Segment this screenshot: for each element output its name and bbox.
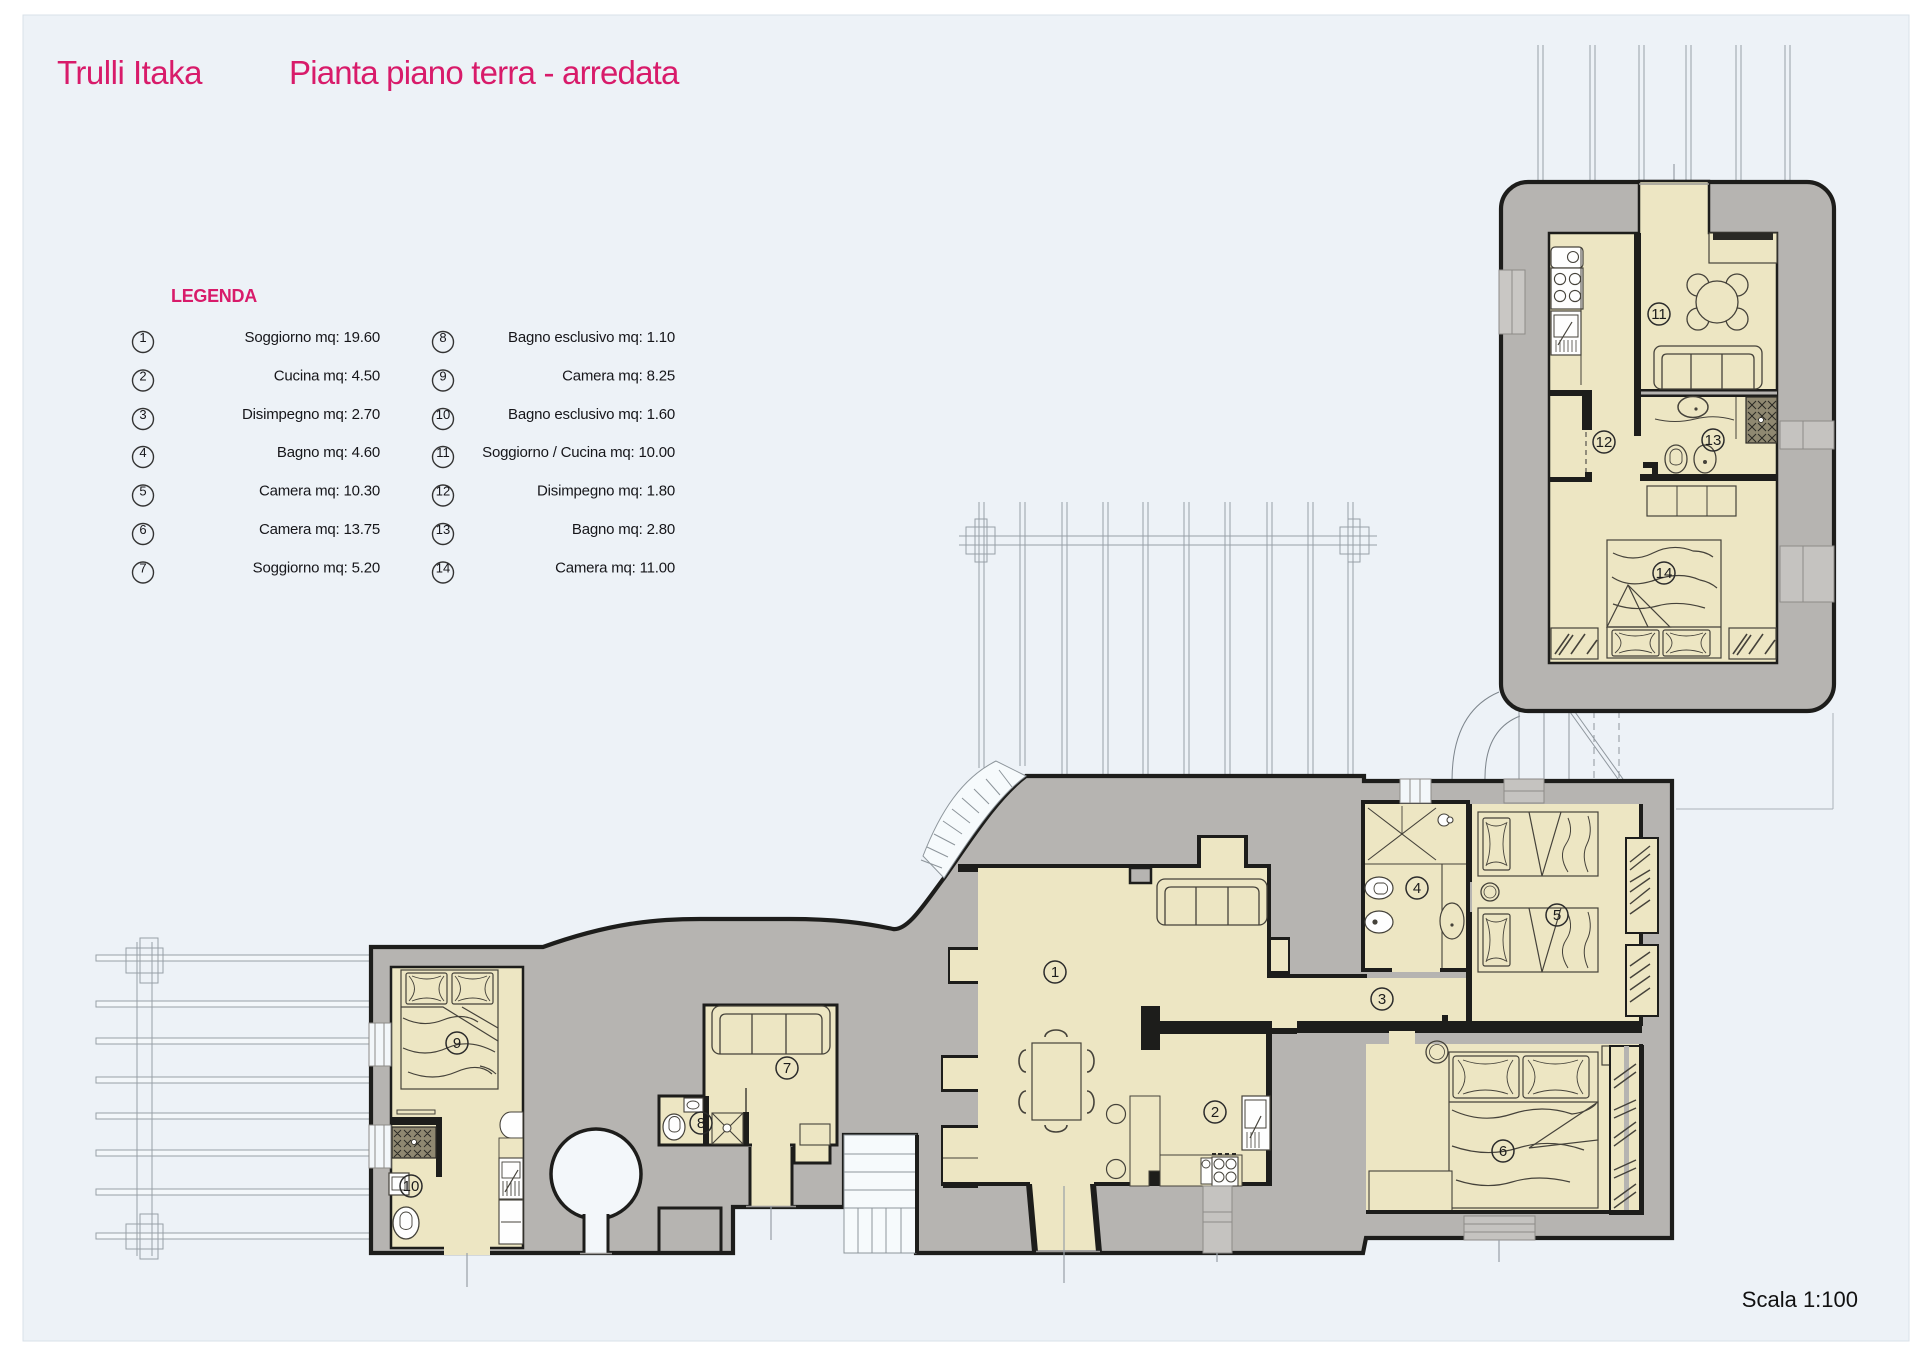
svg-text:5: 5 [1553,907,1561,924]
svg-text:9: 9 [439,369,446,384]
svg-text:8: 8 [697,1115,705,1132]
svg-text:10: 10 [403,1178,420,1195]
svg-text:Cucina mq: 4.50: Cucina mq: 4.50 [274,368,380,385]
svg-text:7: 7 [139,561,146,576]
svg-text:Soggiorno mq: 5.20: Soggiorno mq: 5.20 [253,560,380,577]
svg-text:1: 1 [1051,964,1059,981]
svg-text:Camera mq: 13.75: Camera mq: 13.75 [259,521,380,538]
svg-text:14: 14 [436,561,450,576]
svg-text:12: 12 [436,484,450,499]
svg-text:7: 7 [783,1060,791,1077]
svg-text:4: 4 [139,445,146,460]
svg-text:Soggiorno mq: 19.60: Soggiorno mq: 19.60 [245,329,380,346]
svg-text:11: 11 [436,445,450,460]
svg-text:Bagno mq: 2.80: Bagno mq: 2.80 [572,521,675,538]
svg-text:Scala 1:100: Scala 1:100 [1742,1287,1858,1312]
svg-text:2: 2 [139,369,146,384]
svg-text:6: 6 [1499,1143,1507,1160]
svg-text:3: 3 [1378,991,1386,1008]
svg-text:9: 9 [453,1035,461,1052]
svg-text:10: 10 [436,407,450,422]
svg-text:8: 8 [439,330,446,345]
svg-text:6: 6 [139,522,146,537]
svg-text:12: 12 [1596,434,1613,451]
svg-text:4: 4 [1413,880,1421,897]
svg-text:Bagno mq: 4.60: Bagno mq: 4.60 [277,444,380,461]
svg-text:Disimpegno mq: 1.80: Disimpegno mq: 1.80 [537,483,675,500]
svg-text:11: 11 [1651,306,1667,323]
svg-text:1: 1 [139,330,146,345]
svg-text:Pianta piano terra - arredata: Pianta piano terra - arredata [289,54,680,91]
svg-text:Camera mq: 10.30: Camera mq: 10.30 [259,483,380,500]
svg-text:14: 14 [1656,565,1673,582]
svg-text:Bagno esclusivo mq: 1.60: Bagno esclusivo mq: 1.60 [508,406,675,423]
svg-text:Bagno esclusivo mq: 1.10: Bagno esclusivo mq: 1.10 [508,329,675,346]
svg-text:Soggiorno / Cucina mq: 10.00: Soggiorno / Cucina mq: 10.00 [482,444,675,461]
svg-text:Camera mq: 8.25: Camera mq: 8.25 [562,368,675,385]
svg-text:13: 13 [436,522,450,537]
svg-text:Disimpegno mq: 2.70: Disimpegno mq: 2.70 [242,406,380,423]
svg-text:2: 2 [1211,1104,1219,1121]
svg-text:3: 3 [139,407,146,422]
svg-text:Trulli Itaka: Trulli Itaka [57,54,203,91]
svg-text:5: 5 [139,484,146,499]
svg-text:13: 13 [1705,432,1722,449]
svg-text:LEGENDA: LEGENDA [171,286,257,306]
svg-text:Camera mq: 11.00: Camera mq: 11.00 [555,560,675,577]
